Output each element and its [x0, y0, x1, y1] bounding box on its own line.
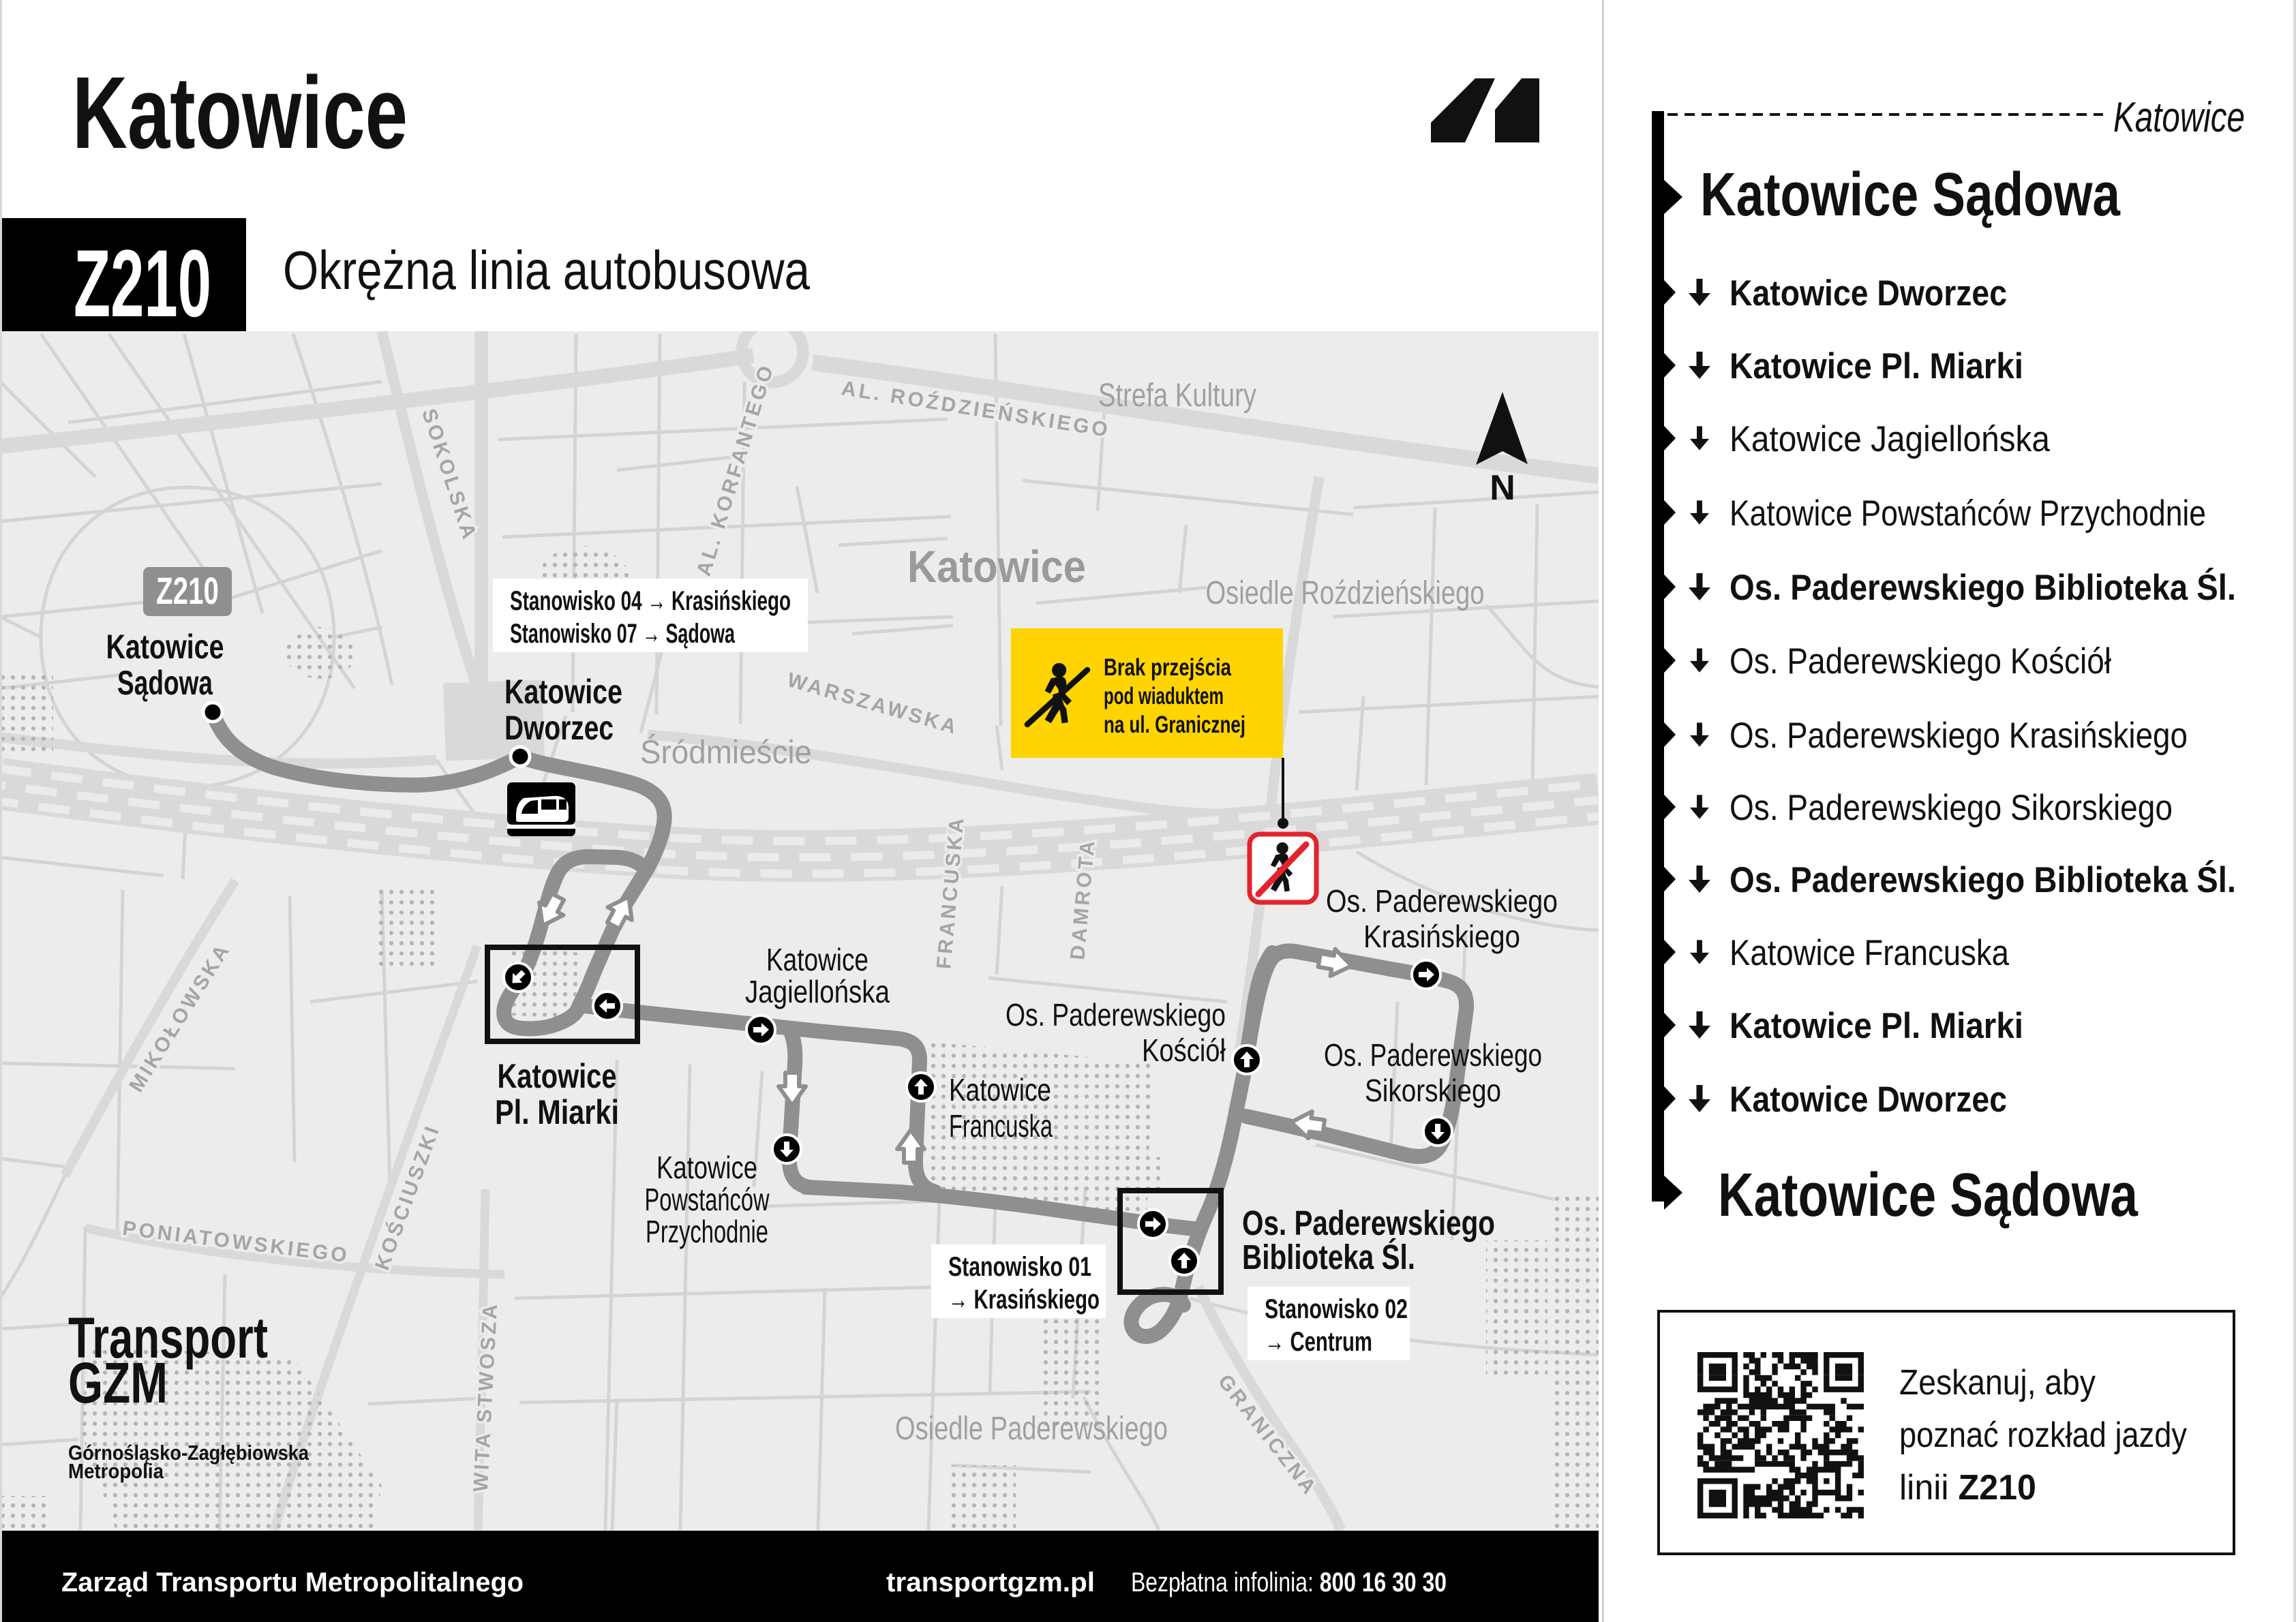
svg-text:Powstańców: Powstańców — [645, 1182, 770, 1217]
svg-text:Katowice: Katowice — [504, 673, 622, 711]
svg-text:Katowice Powstańców Przychodni: Katowice Powstańców Przychodnie — [1729, 493, 2206, 534]
svg-text:poznać rozkład jazdy: poznać rozkład jazdy — [1899, 1416, 2187, 1455]
svg-text:Katowice Sądowa: Katowice Sądowa — [1718, 1161, 2139, 1229]
svg-text:Sądowa: Sądowa — [117, 664, 213, 702]
svg-text:Stanowisko 01: Stanowisko 01 — [948, 1252, 1091, 1282]
svg-text:Krasińskiego: Krasińskiego — [1363, 919, 1520, 954]
svg-text:Katowice Jagiellońska: Katowice Jagiellońska — [1729, 419, 2050, 459]
svg-text:linii Z210: linii Z210 — [1899, 1468, 2036, 1508]
svg-text:→ Centrum: → Centrum — [1265, 1327, 1372, 1357]
svg-text:Sikorskiego: Sikorskiego — [1365, 1073, 1501, 1108]
svg-text:Okrężna linia autobusowa: Okrężna linia autobusowa — [283, 240, 810, 301]
svg-text:→ Krasińskiego: → Krasińskiego — [948, 1285, 1100, 1315]
svg-text:Śródmieście: Śródmieście — [640, 733, 812, 771]
svg-text:Biblioteka Śl.: Biblioteka Śl. — [1242, 1238, 1415, 1276]
svg-text:Os. Paderewskiego Sikorskiego: Os. Paderewskiego Sikorskiego — [1729, 788, 2173, 828]
svg-text:Os. Paderewskiego: Os. Paderewskiego — [1324, 1037, 1542, 1073]
svg-text:Katowice Pl. Miarki: Katowice Pl. Miarki — [1729, 346, 2023, 386]
svg-text:Strefa Kultury: Strefa Kultury — [1098, 378, 1256, 414]
svg-text:Katowice: Katowice — [106, 628, 224, 666]
svg-text:Os. Paderewskiego: Os. Paderewskiego — [1242, 1204, 1495, 1242]
svg-text:Z210: Z210 — [74, 230, 211, 337]
svg-text:Przychodnie: Przychodnie — [646, 1214, 768, 1249]
svg-text:na ul. Granicznej: na ul. Granicznej — [1104, 711, 1245, 738]
svg-text:pod wiaduktem: pod wiaduktem — [1104, 683, 1224, 709]
svg-text:Jagiellońska: Jagiellońska — [745, 974, 890, 1009]
svg-text:Stanowisko 04 → Krasińskiego: Stanowisko 04 → Krasińskiego — [510, 586, 791, 616]
svg-text:Stanowisko 02: Stanowisko 02 — [1265, 1294, 1408, 1324]
svg-text:Stanowisko 07 → Sądowa: Stanowisko 07 → Sądowa — [510, 619, 736, 649]
svg-text:Brak przejścia: Brak przejścia — [1104, 654, 1231, 681]
svg-text:Os. Paderewskiego Kościół: Os. Paderewskiego Kościół — [1729, 641, 2111, 682]
svg-text:Osiedle Roździeńskiego: Osiedle Roździeńskiego — [1206, 575, 1485, 611]
svg-text:Z210: Z210 — [156, 569, 219, 612]
svg-text:Katowice Pl. Miarki: Katowice Pl. Miarki — [1729, 1006, 2023, 1046]
svg-text:transportgzm.pl: transportgzm.pl — [886, 1567, 1095, 1597]
svg-text:Katowice Sądowa: Katowice Sądowa — [1700, 161, 2121, 229]
svg-text:Francuska: Francuska — [949, 1108, 1053, 1144]
svg-text:Katowice Dworzec: Katowice Dworzec — [1729, 1080, 2007, 1120]
svg-text:Dworzec: Dworzec — [504, 709, 614, 747]
svg-text:GZM: GZM — [68, 1351, 168, 1415]
svg-text:Os. Paderewskiego Krasińskiego: Os. Paderewskiego Krasińskiego — [1729, 716, 2188, 756]
svg-text:Os. Paderewskiego Biblioteka Ś: Os. Paderewskiego Biblioteka Śl. — [1729, 567, 2236, 608]
svg-text:Metropolia: Metropolia — [68, 1459, 164, 1483]
svg-text:Zarząd Transportu Metropolital: Zarząd Transportu Metropolitalnego — [61, 1567, 524, 1597]
svg-text:Katowice: Katowice — [766, 942, 868, 977]
svg-text:Zeskanuj, aby: Zeskanuj, aby — [1899, 1363, 2096, 1403]
svg-text:Katowice Francuska: Katowice Francuska — [1729, 933, 2009, 973]
svg-text:N: N — [1490, 468, 1515, 508]
svg-text:Pl. Miarki: Pl. Miarki — [495, 1093, 619, 1131]
svg-text:Osiedle Paderewskiego: Osiedle Paderewskiego — [895, 1411, 1168, 1447]
svg-text:Katowice: Katowice — [2113, 94, 2245, 141]
svg-text:Katowice: Katowice — [656, 1150, 757, 1185]
svg-text:Bezpłatna infolinia: 800 16 30: Bezpłatna infolinia: 800 16 30 30 — [1131, 1567, 1447, 1597]
svg-text:Katowice: Katowice — [949, 1072, 1051, 1107]
svg-text:Katowice Dworzec: Katowice Dworzec — [1729, 273, 2007, 313]
svg-text:Kościół: Kościół — [1142, 1032, 1226, 1068]
svg-text:Katowice: Katowice — [907, 541, 1086, 592]
svg-text:Os. Paderewskiego: Os. Paderewskiego — [1006, 997, 1226, 1032]
svg-text:Katowice: Katowice — [72, 55, 408, 170]
svg-text:Os. Paderewskiego Biblioteka Ś: Os. Paderewskiego Biblioteka Śl. — [1729, 859, 2236, 900]
svg-text:Katowice: Katowice — [498, 1057, 617, 1095]
svg-text:Os. Paderewskiego: Os. Paderewskiego — [1326, 883, 1558, 919]
